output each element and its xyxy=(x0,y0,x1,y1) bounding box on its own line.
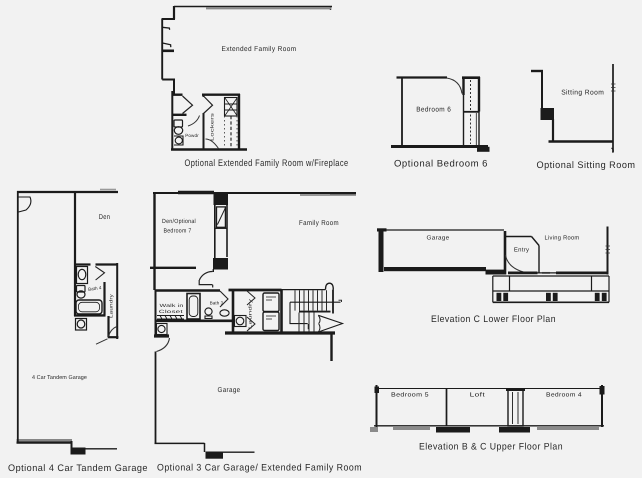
svg-text:Powdr: Powdr xyxy=(185,133,199,138)
svg-text:Bedroom 6: Bedroom 6 xyxy=(416,106,451,114)
svg-text:Bedroom 5: Bedroom 5 xyxy=(391,392,429,399)
svg-text:Optional 4 Car Tandem Garage: Optional 4 Car Tandem Garage xyxy=(8,463,148,474)
svg-text:Walk in: Walk in xyxy=(160,303,185,308)
svg-text:Bath 3: Bath 3 xyxy=(210,301,224,306)
svg-text:Entry: Entry xyxy=(514,247,530,254)
svg-text:4 Car Tandem Garage: 4 Car Tandem Garage xyxy=(32,374,87,381)
svg-text:Lockers: Lockers xyxy=(210,112,215,141)
svg-text:Sitting Room: Sitting Room xyxy=(561,89,604,97)
svg-text:Closet: Closet xyxy=(159,309,184,314)
svg-text:Den/Optional: Den/Optional xyxy=(162,218,196,225)
svg-text:Bedroom 4: Bedroom 4 xyxy=(546,392,582,399)
svg-text:Loft: Loft xyxy=(470,392,486,399)
svg-text:Elevation C Lower Floor Plan: Elevation C Lower Floor Plan xyxy=(431,314,556,325)
svg-text:Optional Sitting Room: Optional Sitting Room xyxy=(537,160,636,171)
svg-text:Elevation B & C Upper Floor Pl: Elevation B & C Upper Floor Plan xyxy=(419,442,563,453)
svg-text:Den: Den xyxy=(99,214,111,221)
svg-text:Living Room: Living Room xyxy=(545,235,580,242)
svg-text:Garage: Garage xyxy=(427,235,450,242)
svg-text:Optional 3 Car Garage/ Extende: Optional 3 Car Garage/ Extended Family R… xyxy=(157,463,362,474)
svg-text:Bedroom 7: Bedroom 7 xyxy=(164,228,192,235)
svg-text:Optional Bedroom 6: Optional Bedroom 6 xyxy=(394,159,488,170)
svg-text:Laundry: Laundry xyxy=(109,293,114,318)
svg-text:Garage: Garage xyxy=(218,387,241,394)
svg-text:Family Room: Family Room xyxy=(299,219,339,227)
svg-text:Optional Extended Family Room: Optional Extended Family Room w/Fireplac… xyxy=(185,158,349,169)
svg-text:Extended Family Room: Extended Family Room xyxy=(222,45,297,53)
